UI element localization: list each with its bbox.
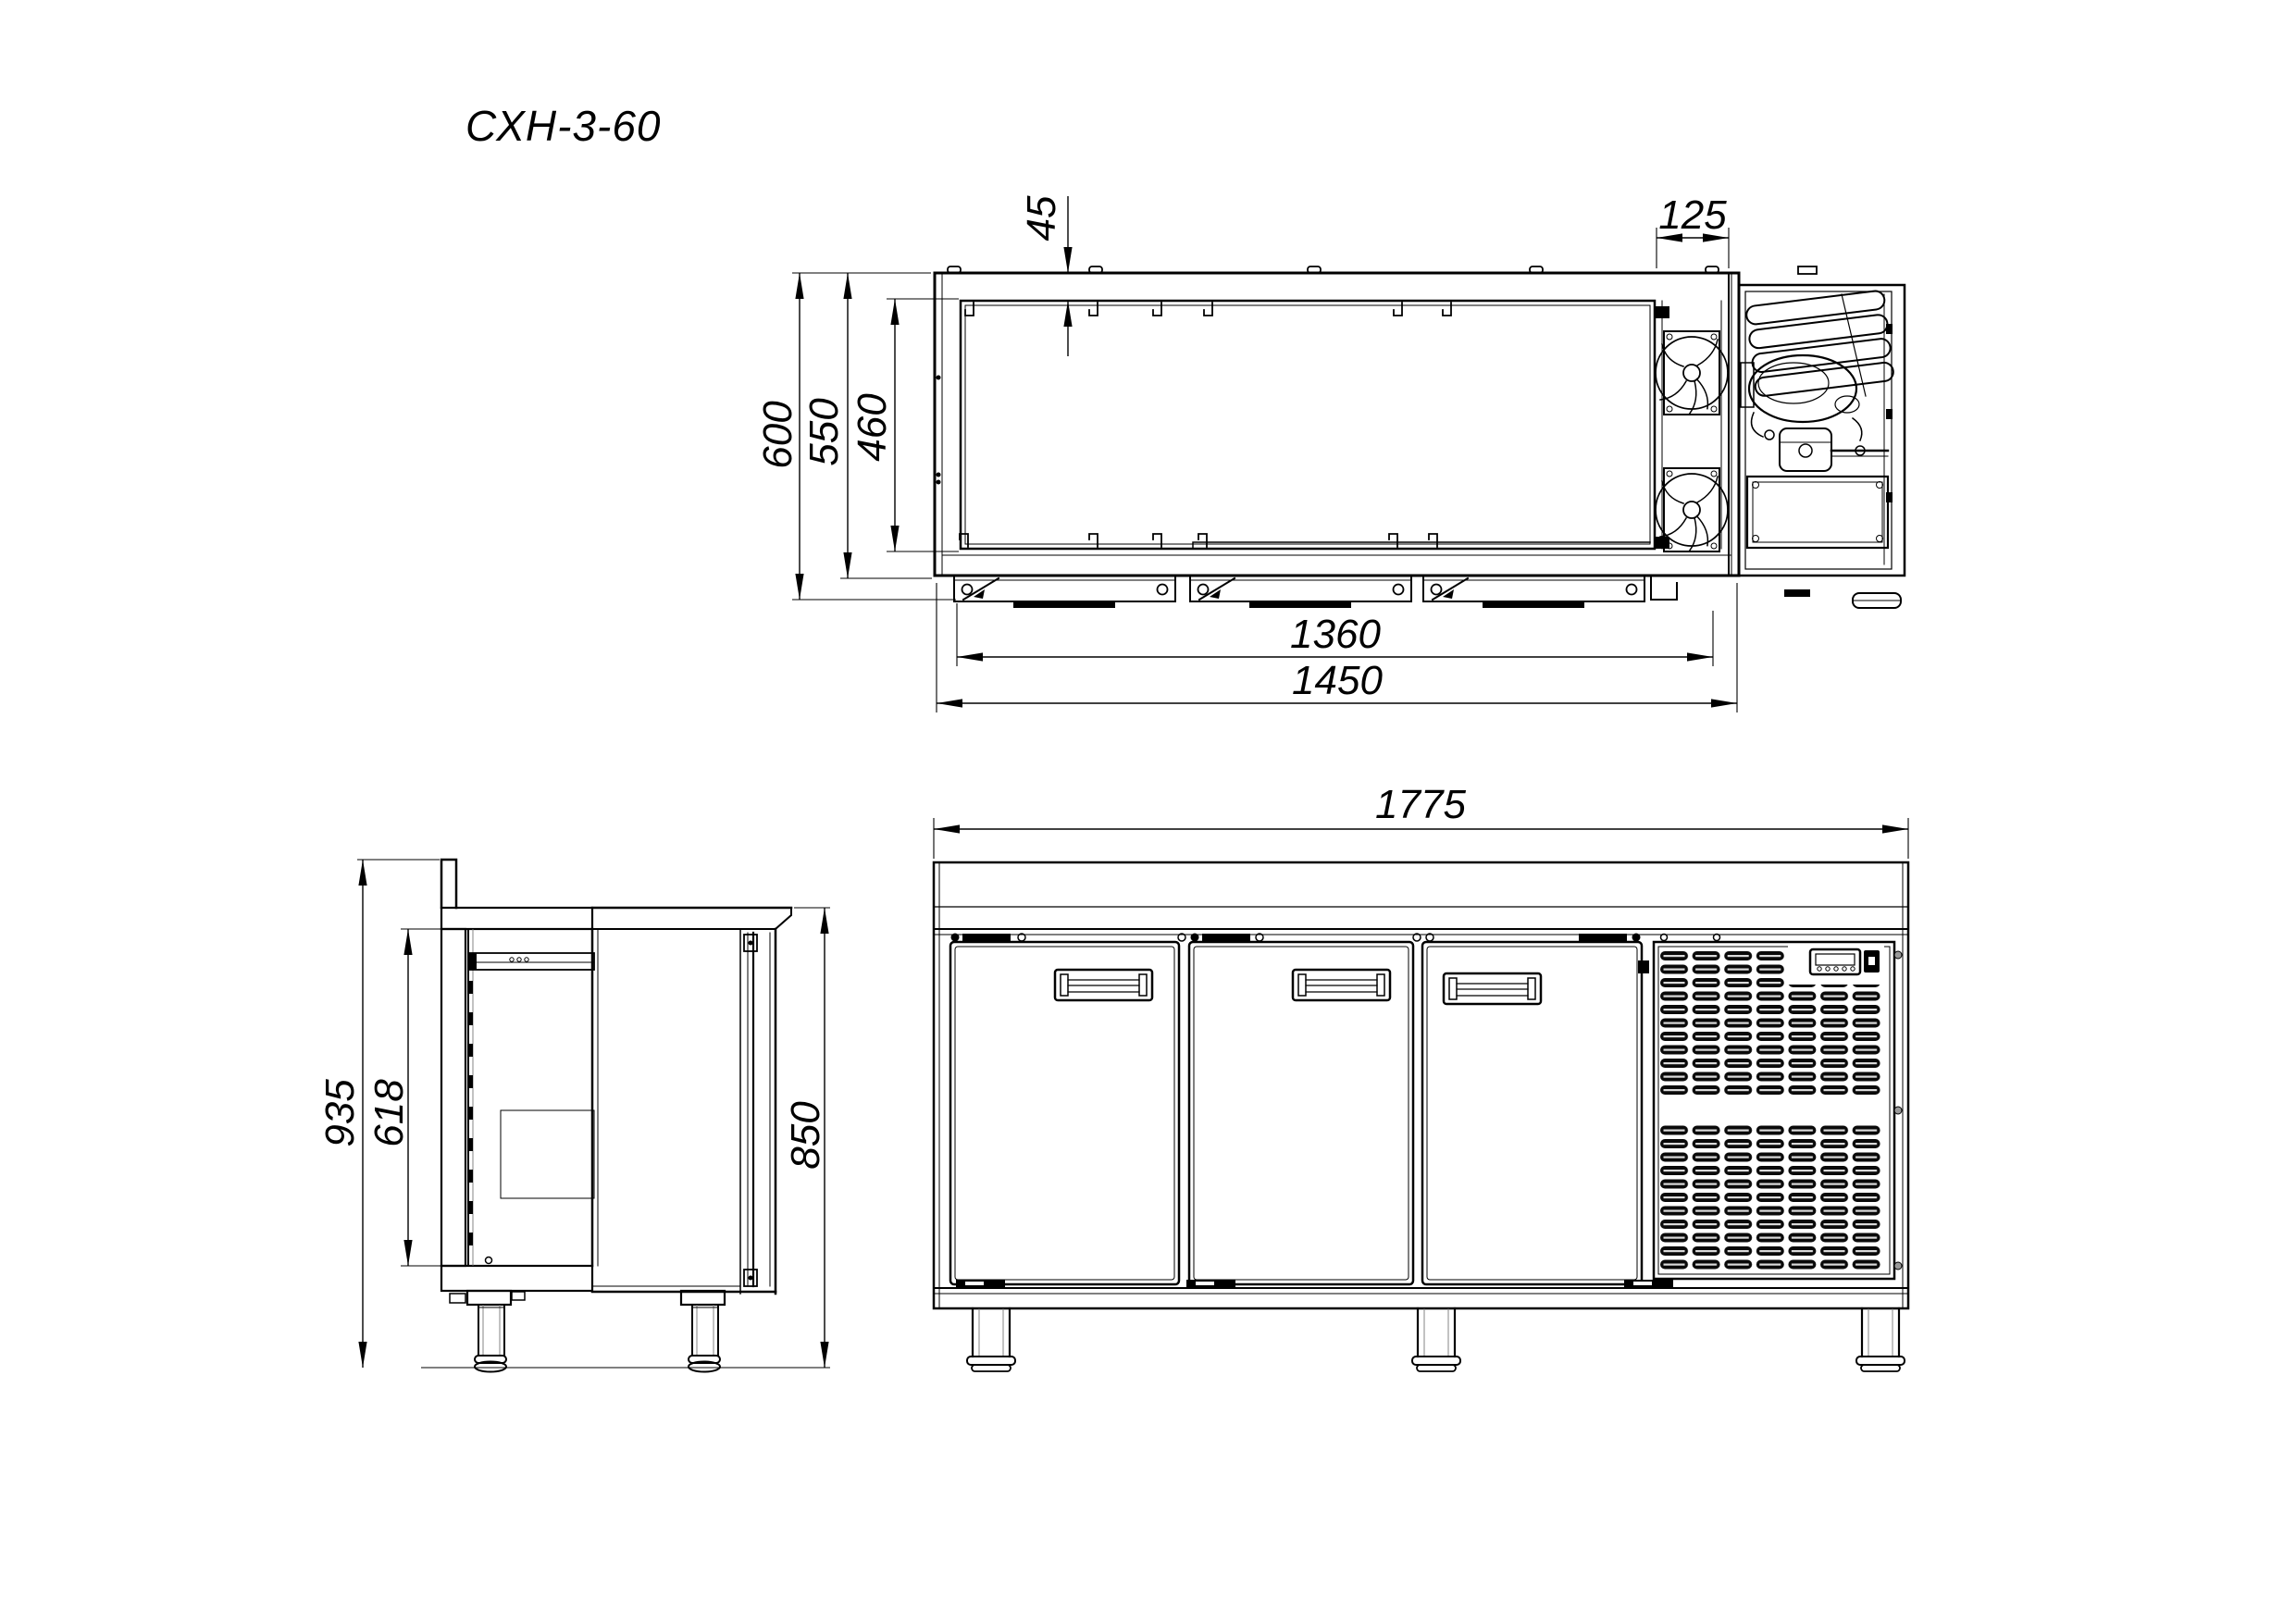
svg-text:935: 935 bbox=[317, 1079, 363, 1147]
louvers-lower bbox=[1660, 1124, 1884, 1272]
plan-body-outline bbox=[935, 273, 1739, 576]
door-2 bbox=[1189, 942, 1413, 1284]
svg-text:1775: 1775 bbox=[1375, 782, 1466, 827]
svg-text:550: 550 bbox=[801, 398, 847, 466]
dim-height-worktop-850: 850 bbox=[783, 908, 830, 1368]
front-leg-left bbox=[967, 1308, 1015, 1371]
front-leg-right bbox=[1856, 1308, 1905, 1371]
electrical-box bbox=[1747, 477, 1888, 548]
dim-rear-wall-45: 45 bbox=[1019, 195, 1068, 356]
side-door-profile bbox=[744, 929, 776, 1294]
door-3 bbox=[1422, 942, 1642, 1284]
door-top-hinges bbox=[951, 934, 1720, 974]
front-leg-center bbox=[1412, 1308, 1460, 1371]
door-2-handle bbox=[1293, 970, 1390, 1000]
insulation-hatch-rear bbox=[441, 929, 465, 1266]
svg-text:1450: 1450 bbox=[1292, 658, 1383, 703]
side-view: 935 618 850 bbox=[317, 860, 830, 1372]
vent-grille bbox=[1654, 942, 1902, 1279]
power-switch bbox=[1864, 950, 1880, 973]
svg-text:850: 850 bbox=[783, 1101, 828, 1170]
technical-drawing: СХН-3-60 bbox=[0, 0, 2296, 1623]
svg-text:125: 125 bbox=[1658, 192, 1727, 238]
shelf-clips bbox=[960, 303, 1451, 547]
svg-text:45: 45 bbox=[1019, 195, 1064, 241]
dim-fan-bay-125: 125 bbox=[1657, 192, 1729, 268]
svg-text:618: 618 bbox=[366, 1079, 412, 1147]
front-view: 1775 bbox=[934, 782, 1908, 1371]
refrigerant-piping bbox=[1752, 413, 1888, 471]
drawing-page: СХН-3-60 bbox=[0, 0, 2296, 1623]
fan-1 bbox=[1656, 331, 1728, 415]
condensate-trays bbox=[954, 576, 1677, 608]
svg-text:1360: 1360 bbox=[1290, 612, 1381, 657]
backsplash bbox=[441, 860, 456, 908]
svg-text:460: 460 bbox=[850, 393, 895, 462]
plan-liner bbox=[961, 301, 1655, 549]
door-3-handle bbox=[1444, 973, 1541, 1004]
fan-bay bbox=[1656, 275, 1729, 574]
door-1-handle bbox=[1055, 970, 1152, 1000]
plan-view: 45 125 600 550 460 bbox=[755, 192, 1905, 712]
compressor bbox=[1741, 355, 1859, 422]
side-leg-rear bbox=[681, 1291, 725, 1372]
interior-rail bbox=[468, 953, 594, 970]
perforated-panel bbox=[501, 1110, 594, 1198]
dim-width-total-1775: 1775 bbox=[934, 782, 1908, 859]
side-leg-front bbox=[467, 1291, 511, 1372]
dim-width-inner-1360: 1360 bbox=[957, 603, 1713, 666]
svg-text:600: 600 bbox=[755, 401, 800, 469]
machinery-compartment bbox=[1739, 285, 1905, 608]
drawing-title: СХН-3-60 bbox=[465, 102, 662, 150]
insulation-hatch-bottom bbox=[441, 1266, 592, 1291]
condenser-coil bbox=[1745, 290, 1894, 397]
door-1 bbox=[950, 942, 1179, 1284]
dim-height-inner-618: 618 bbox=[366, 929, 466, 1266]
worktop bbox=[934, 907, 1908, 935]
insulation-hatch-top bbox=[441, 908, 592, 929]
